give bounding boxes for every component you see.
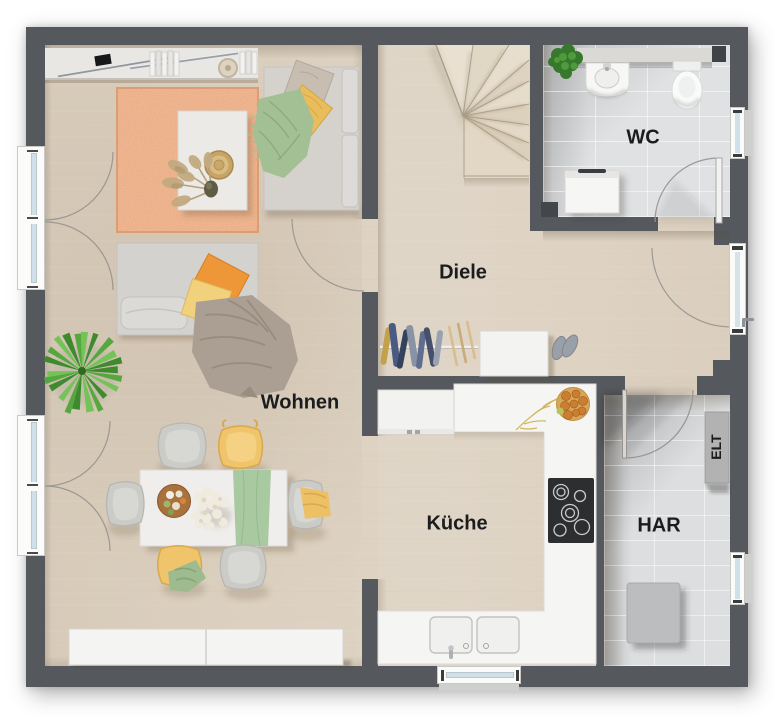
svg-text:ELT: ELT	[708, 434, 724, 460]
